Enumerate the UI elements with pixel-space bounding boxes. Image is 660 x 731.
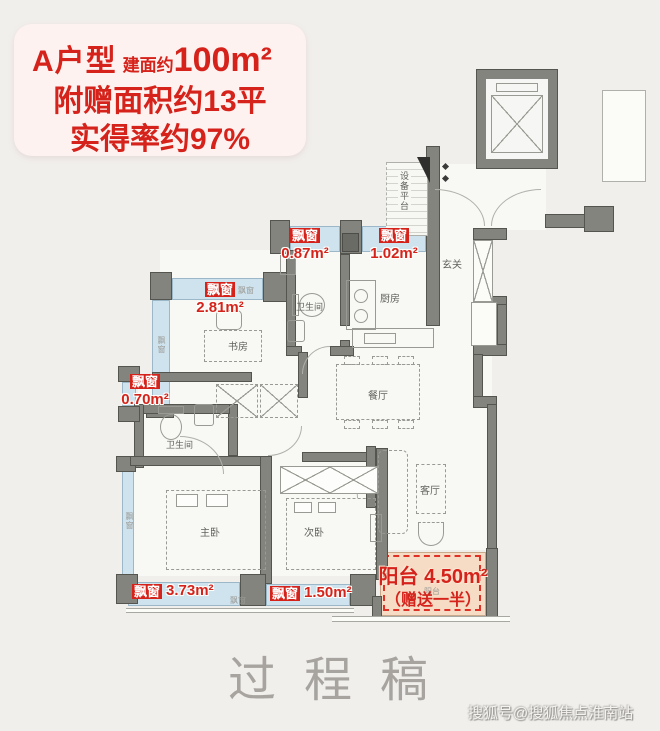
annotation-bay-window-102: 飘窗 1.02m² (352, 227, 436, 263)
annotation-balcony-title: 阳台 4.50m² (378, 560, 488, 589)
room-label-master: 主卧 (200, 524, 220, 539)
dining-chair (344, 420, 360, 429)
kitchen-sink (364, 333, 396, 344)
wall-segment (473, 228, 507, 240)
bay-window-value: 2.81m² (196, 299, 244, 316)
annotation-bay-window-373: 飘窗 3.73m² (132, 583, 214, 599)
wall-segment (487, 404, 497, 552)
elevator-cab (491, 95, 543, 153)
room-label-bath1: 卫生间 (296, 300, 323, 313)
hall-wardrobe (216, 384, 258, 418)
bathroom-sink (194, 404, 214, 426)
duct-shaft (473, 240, 493, 302)
room-label-bath2: 卫生间 (166, 438, 193, 451)
annotation-bay-window-070: 飘窗 0.70m² (112, 373, 178, 409)
draft-watermark: 过程稿 (228, 640, 456, 710)
floorplan-page: 设备平台 (0, 0, 660, 731)
bay-window-tag: 飘窗 (132, 584, 162, 599)
unit-info-badge: A户型 建面约 100m² 附赠面积约13平 实得率约97% (14, 24, 306, 156)
wall-segment (330, 346, 354, 356)
wall-segment (473, 354, 483, 400)
bay-window-value: 1.02m² (370, 245, 418, 262)
stove (346, 280, 376, 330)
room-label-dining: 餐厅 (368, 387, 388, 402)
unit-area-value: 100m² (174, 41, 272, 80)
bay-window-value: 3.73m² (166, 583, 214, 599)
entry-closet (471, 302, 497, 346)
elevator-counterweight (496, 83, 538, 92)
sofa (378, 450, 408, 534)
bay-window-value: 0.70m² (121, 391, 169, 408)
annotation-bay-window-150: 飘窗 1.50m² (270, 585, 352, 601)
unit-area-prefix: 建面约 (123, 51, 174, 76)
adjacent-shaft (602, 90, 646, 182)
wall-segment (584, 206, 614, 232)
bay-window-tag: 飘窗 (290, 228, 320, 243)
wardrobe (280, 466, 378, 494)
bay-window-caption: 飘窗 (124, 512, 135, 530)
annotation-bay-window-087: 飘窗 0.87m² (270, 227, 340, 263)
unit-type-title: A户型 (32, 36, 117, 80)
wall-segment (497, 304, 507, 348)
bay-window-caption: 飘窗 (156, 336, 167, 354)
efficiency-text: 实得率约97% (14, 114, 306, 158)
elevator-shaft (477, 70, 557, 168)
tv-cabinet (370, 514, 382, 542)
equipment-platform-label: 设备平台 (398, 171, 411, 211)
equipment-platform: 设备平台 (386, 162, 428, 236)
window-sill-line (126, 608, 354, 613)
room-label-second: 次卧 (304, 524, 324, 539)
room-label-entry: 玄关 (442, 256, 462, 271)
bay-window-tag: 飘窗 (270, 586, 300, 601)
bay-window-tag: 飘窗 (205, 282, 235, 297)
bathroom-sink (287, 320, 305, 342)
room-label-study: 书房 (228, 338, 248, 353)
hall-wardrobe (260, 384, 298, 418)
room-label-living: 客厅 (420, 482, 440, 497)
bay-window-value: 1.50m² (304, 585, 352, 601)
bay-window-tag: 飘窗 (130, 374, 160, 389)
wall-segment (150, 272, 172, 300)
toilet (160, 414, 182, 440)
annotation-bay-window-281: 飘窗 2.81m² (176, 281, 264, 317)
room-label-kitchen: 厨房 (380, 290, 400, 305)
annotation-balcony-note: （赠送一半） (378, 586, 488, 610)
credit-watermark: 搜狐号@搜狐焦点淮南站 (468, 702, 633, 723)
bay-window-value: 0.87m² (281, 245, 329, 262)
dining-chair (372, 420, 388, 429)
dining-chair (398, 420, 414, 429)
wall-segment (545, 214, 589, 228)
unit-headline: A户型 建面约 100m² (32, 36, 272, 80)
bay-window-tag: 飘窗 (379, 228, 409, 243)
balcony-railing (332, 616, 510, 622)
bay-window-caption: 飘窗 (230, 595, 246, 606)
